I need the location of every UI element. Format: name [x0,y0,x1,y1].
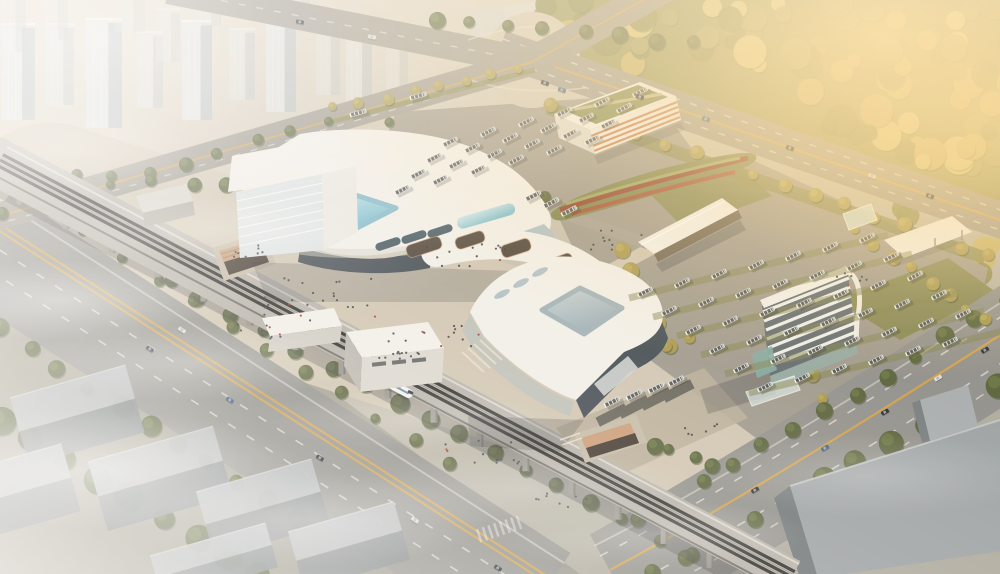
aerial-render-canvas: Aerial architectural rendering of an int… [0,0,1000,574]
warm-tint [0,0,1000,574]
transit-hub-rendering: Aerial architectural rendering of an int… [0,0,1000,574]
